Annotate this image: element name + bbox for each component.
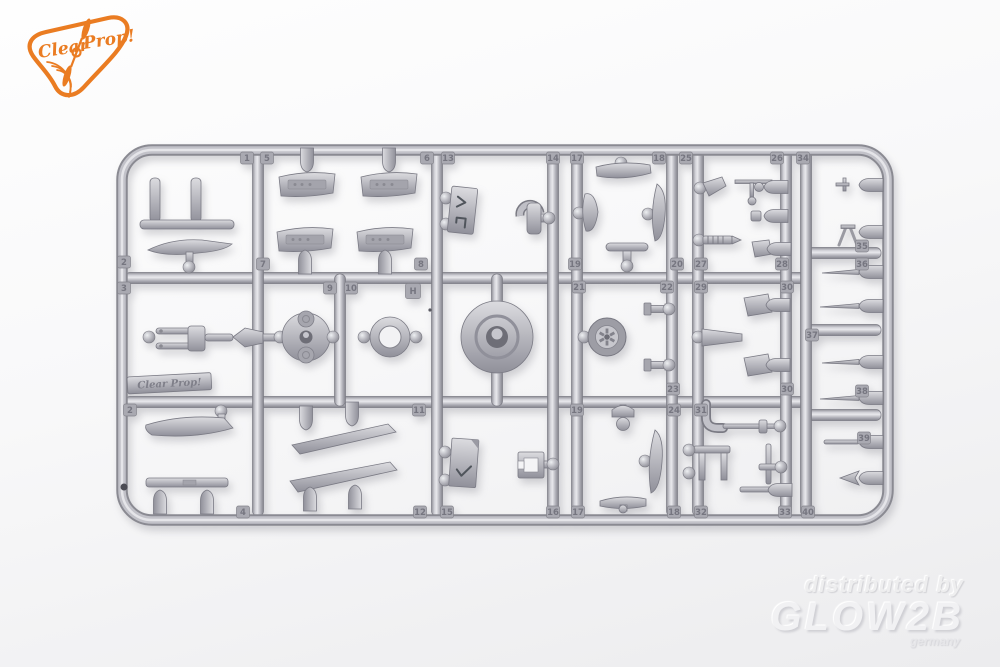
svg-text:39: 39 [858,434,870,444]
engine-cylinder-drum-part [282,311,339,363]
svg-text:2: 2 [127,406,133,416]
cone-and-cowl-flap-parts [692,294,790,376]
svg-text:37: 37 [806,331,818,341]
part-number-tag: 29 [695,281,708,293]
part-number-tag: 34 [797,152,810,164]
part-number-tag: 19 [571,404,584,416]
part-number-tag: 17 [572,506,585,518]
instrument-panel-parts [277,148,417,274]
svg-text:3: 3 [121,284,127,294]
part-number-tag: 32 [695,506,708,518]
svg-text:30: 30 [781,283,793,293]
boarding-step-part [140,178,234,229]
part-number-tag: 35 [856,240,869,252]
placard-plate-part [440,186,478,234]
checked-plate-part [439,438,479,488]
svg-text:18: 18 [653,154,665,164]
part-number-tag: 28 [776,258,789,270]
svg-text:17: 17 [572,508,584,518]
svg-text:28: 28 [776,260,788,270]
svg-text:2: 2 [121,258,127,268]
cowling-front-disc-part [461,301,533,373]
part-number-tag: 17 [571,152,584,164]
part-number-tag: 36 [856,258,869,270]
part-number-tag: 39 [858,432,871,444]
part-number-tag: 15 [441,506,454,518]
part-number-tag: 3 [118,282,131,294]
part-number-tag: 30 [781,383,794,395]
part-number-tag: 4 [237,506,250,518]
svg-text:17: 17 [571,154,583,164]
svg-text:7: 7 [260,260,266,270]
svg-text:H: H [409,287,416,297]
blade-and-plate-parts-bottom-left [146,405,233,514]
svg-text:19: 19 [569,260,581,270]
part-number-tag: 6 [421,152,434,164]
svg-text:10: 10 [345,284,357,294]
propeller-blade-parts [573,157,665,272]
svg-text:25: 25 [680,154,692,164]
svg-text:24: 24 [668,406,680,416]
svg-text:12: 12 [414,508,426,518]
part-number-tag: 9 [324,282,337,294]
svg-text:40: 40 [802,508,814,518]
svg-text:21: 21 [573,283,585,293]
part-number-tag: 33 [779,506,792,518]
svg-text:11: 11 [413,406,425,416]
part-number-tag: 26 [771,152,784,164]
svg-text:20: 20 [671,260,683,270]
svg-text:30: 30 [781,385,793,395]
svg-text:33: 33 [779,508,791,518]
svg-text:13: 13 [442,154,454,164]
part-number-tag: 18 [653,152,666,164]
part-number-tag: 1 [241,152,254,164]
small-fittings-top-right [693,177,791,257]
svg-text:29: 29 [695,283,707,293]
watermark-glow2b: GLOW2B [770,598,964,636]
part-number-tag: 16 [547,506,560,518]
part-number-tag: 25 [680,152,693,164]
curved-blade-part [148,240,232,273]
model-kit-sprue: Clear Prop! 1561314171825263427819202728… [0,0,1000,667]
svg-text:16: 16 [547,508,559,518]
part-number-tag: 38 [856,385,869,397]
part-number-tag: 14 [547,152,560,164]
svg-text:35: 35 [856,242,868,252]
part-number-tag: 8 [415,258,428,270]
torque-link-assembly [143,326,286,351]
part-number-tag: 37 [806,329,819,341]
part-number-tag: 13 [442,152,455,164]
part-number-tag: 30 [781,281,794,293]
main-wheel-part [578,318,626,356]
part-number-tag: 27 [695,258,708,270]
part-number-tag: 7 [257,258,270,270]
part-number-tag: 40 [802,506,815,518]
svg-text:15: 15 [441,508,453,518]
part-number-tag: 12 [414,506,427,518]
part-number-tag: H [406,284,421,299]
part-number-tag: 21 [573,281,586,293]
mold-speck [428,308,431,311]
part-number-tag: 11 [413,404,426,416]
distributor-watermark: distributed by GLOW2B germany [770,572,964,648]
svg-text:32: 32 [695,508,707,518]
svg-text:6: 6 [424,154,430,164]
svg-text:4: 4 [240,508,246,518]
svg-text:31: 31 [695,406,707,416]
frame-mark [121,484,128,491]
part-number-tag: 18 [668,506,681,518]
svg-text:19: 19 [571,406,583,416]
part-number-tag: 31 [695,404,708,416]
part-number-tag: 24 [668,404,681,416]
svg-text:27: 27 [695,260,707,270]
svg-text:26: 26 [771,154,783,164]
svg-text:5: 5 [264,154,270,164]
part-number-tag: 22 [661,281,674,293]
cowl-ring-part [358,317,422,357]
svg-text:22: 22 [661,283,673,293]
knob-blade-tailplane-parts [600,405,662,513]
svg-text:1: 1 [244,154,250,164]
part-number-tag: 10 [345,282,358,294]
part-number-tag: 2 [118,256,131,268]
strut-strip-parts [290,402,397,511]
svg-text:14: 14 [547,154,559,164]
svg-text:38: 38 [856,387,868,397]
part-number-tag: 5 [261,152,274,164]
sprue-brand-plate: Clear Prop! [127,373,212,394]
svg-text:34: 34 [797,154,809,164]
product-photo: Clear Prop! [0,0,1000,667]
svg-text:36: 36 [856,260,868,270]
part-number-tag: 23 [667,383,680,395]
svg-text:8: 8 [418,260,424,270]
part-number-tag: 19 [569,258,582,270]
svg-text:18: 18 [668,508,680,518]
part-number-tag: 20 [671,258,684,270]
svg-text:23: 23 [667,385,679,395]
part-number-tag: 2 [124,404,137,416]
svg-text:9: 9 [327,284,333,294]
